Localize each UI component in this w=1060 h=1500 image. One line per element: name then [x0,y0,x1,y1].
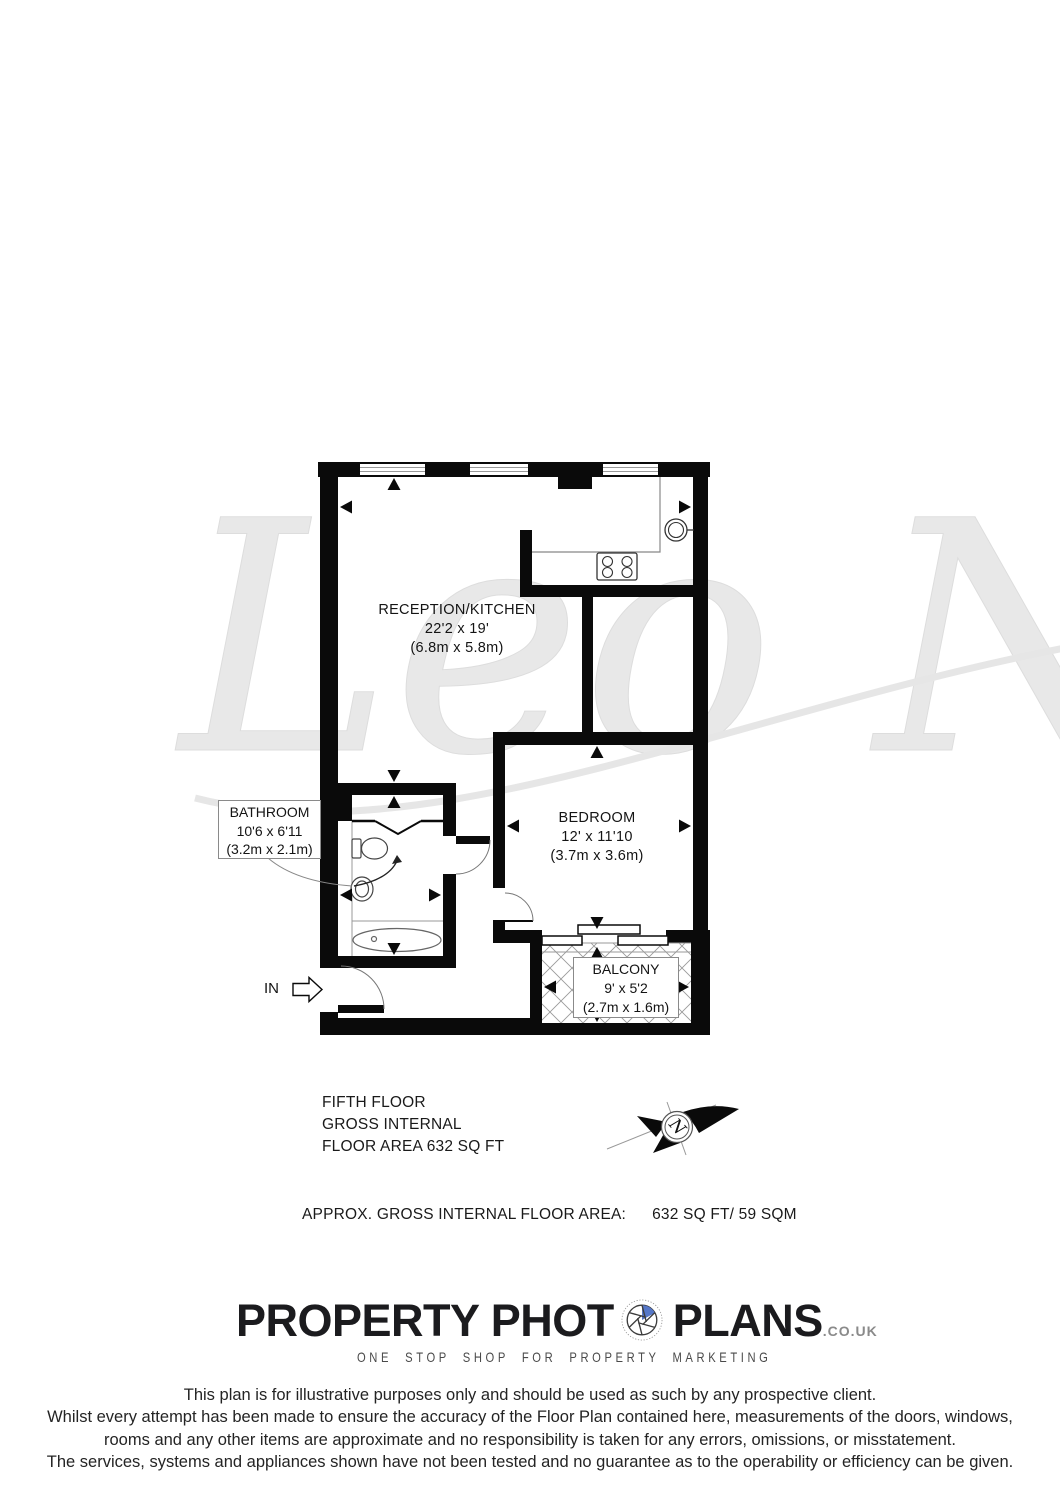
entrance-arrow-icon [293,978,322,1002]
disclaimer-line1: This plan is for illustrative purposes o… [0,1384,1060,1406]
brand-tagline: ONE STOP SHOP FOR PROPERTY MARKETING [357,1349,771,1365]
disclaimer-line2: Whilst every attempt has been made to en… [0,1406,1060,1428]
room-dims-metric: (3.7m x 3.6m) [477,847,717,866]
floor-info-line1: FIFTH FLOOR [322,1092,504,1114]
area-summary-value: 632 SQ FT/ 59 SQM [652,1206,797,1223]
disclaimer: This plan is for illustrative purposes o… [0,1384,1060,1473]
room-dims-imperial: 9' x 5'2 [574,979,678,998]
bathroom-fixtures [351,821,443,956]
brand-logo: PROPERTY PHOT PLANS .CO.UK [236,1296,878,1344]
area-summary: APPROX. GROSS INTERNAL FLOOR AREA:632 SQ… [302,1206,797,1224]
toilet-icon [352,838,388,859]
floorplan-page: Leo New [0,0,1060,1500]
room-dims-metric: (6.8m x 5.8m) [337,639,577,658]
bathroom-label-box: BATHROOM 10'6 x 6'11 (3.2m x 2.1m) [218,800,321,859]
logo-domain-suffix: .CO.UK [823,1323,878,1344]
room-name: BEDROOM [477,809,717,828]
compass-icon: N [607,1102,739,1155]
disclaimer-line4: The services, systems and appliances sho… [0,1451,1060,1473]
hob-icon [597,553,637,580]
logo-text-right: PLANS [673,1298,823,1343]
basin-icon [351,877,373,901]
area-summary-label: APPROX. GROSS INTERNAL FLOOR AREA: [302,1206,626,1223]
sliding-door [542,925,668,945]
room-name: BATHROOM [219,803,320,822]
logo-text-left: PROPERTY PHOT [236,1298,614,1343]
floor-info-line3: FLOOR AREA 632 SQ FT [322,1136,504,1158]
room-name: BALCONY [574,960,678,979]
room-dims-metric: (2.7m x 1.6m) [574,998,678,1017]
room-dims-imperial: 10'6 x 6'11 [219,822,320,841]
floor-info: FIFTH FLOOR GROSS INTERNAL FLOOR AREA 63… [322,1092,504,1158]
entrance-label: IN [264,980,279,997]
room-name: RECEPTION/KITCHEN [337,601,577,620]
svg-text:Leo New: Leo New [175,454,1060,826]
disclaimer-line3: rooms and any other items are approximat… [0,1429,1060,1451]
label-leader [268,858,352,886]
window-glazing [360,462,658,477]
reception-label: RECEPTION/KITCHEN 22'2 x 19' (6.8m x 5.8… [337,601,577,658]
entrance-door [338,1005,384,1013]
balcony-label-box: BALCONY 9' x 5'2 (2.7m x 1.6m) [573,957,679,1018]
bifold-door [375,821,421,834]
floor-info-line2: GROSS INTERNAL [322,1114,504,1136]
room-dims-metric: (3.2m x 2.1m) [219,840,320,859]
camera-aperture-icon [621,1299,663,1341]
room-dims-imperial: 22'2 x 19' [337,620,577,639]
floorplan-drawing: Leo New [0,0,1060,1500]
bedroom-label: BEDROOM 12' x 11'10 (3.7m x 3.6m) [477,809,717,866]
watermark: Leo New [175,454,1060,826]
room-dims-imperial: 12' x 11'10 [477,828,717,847]
